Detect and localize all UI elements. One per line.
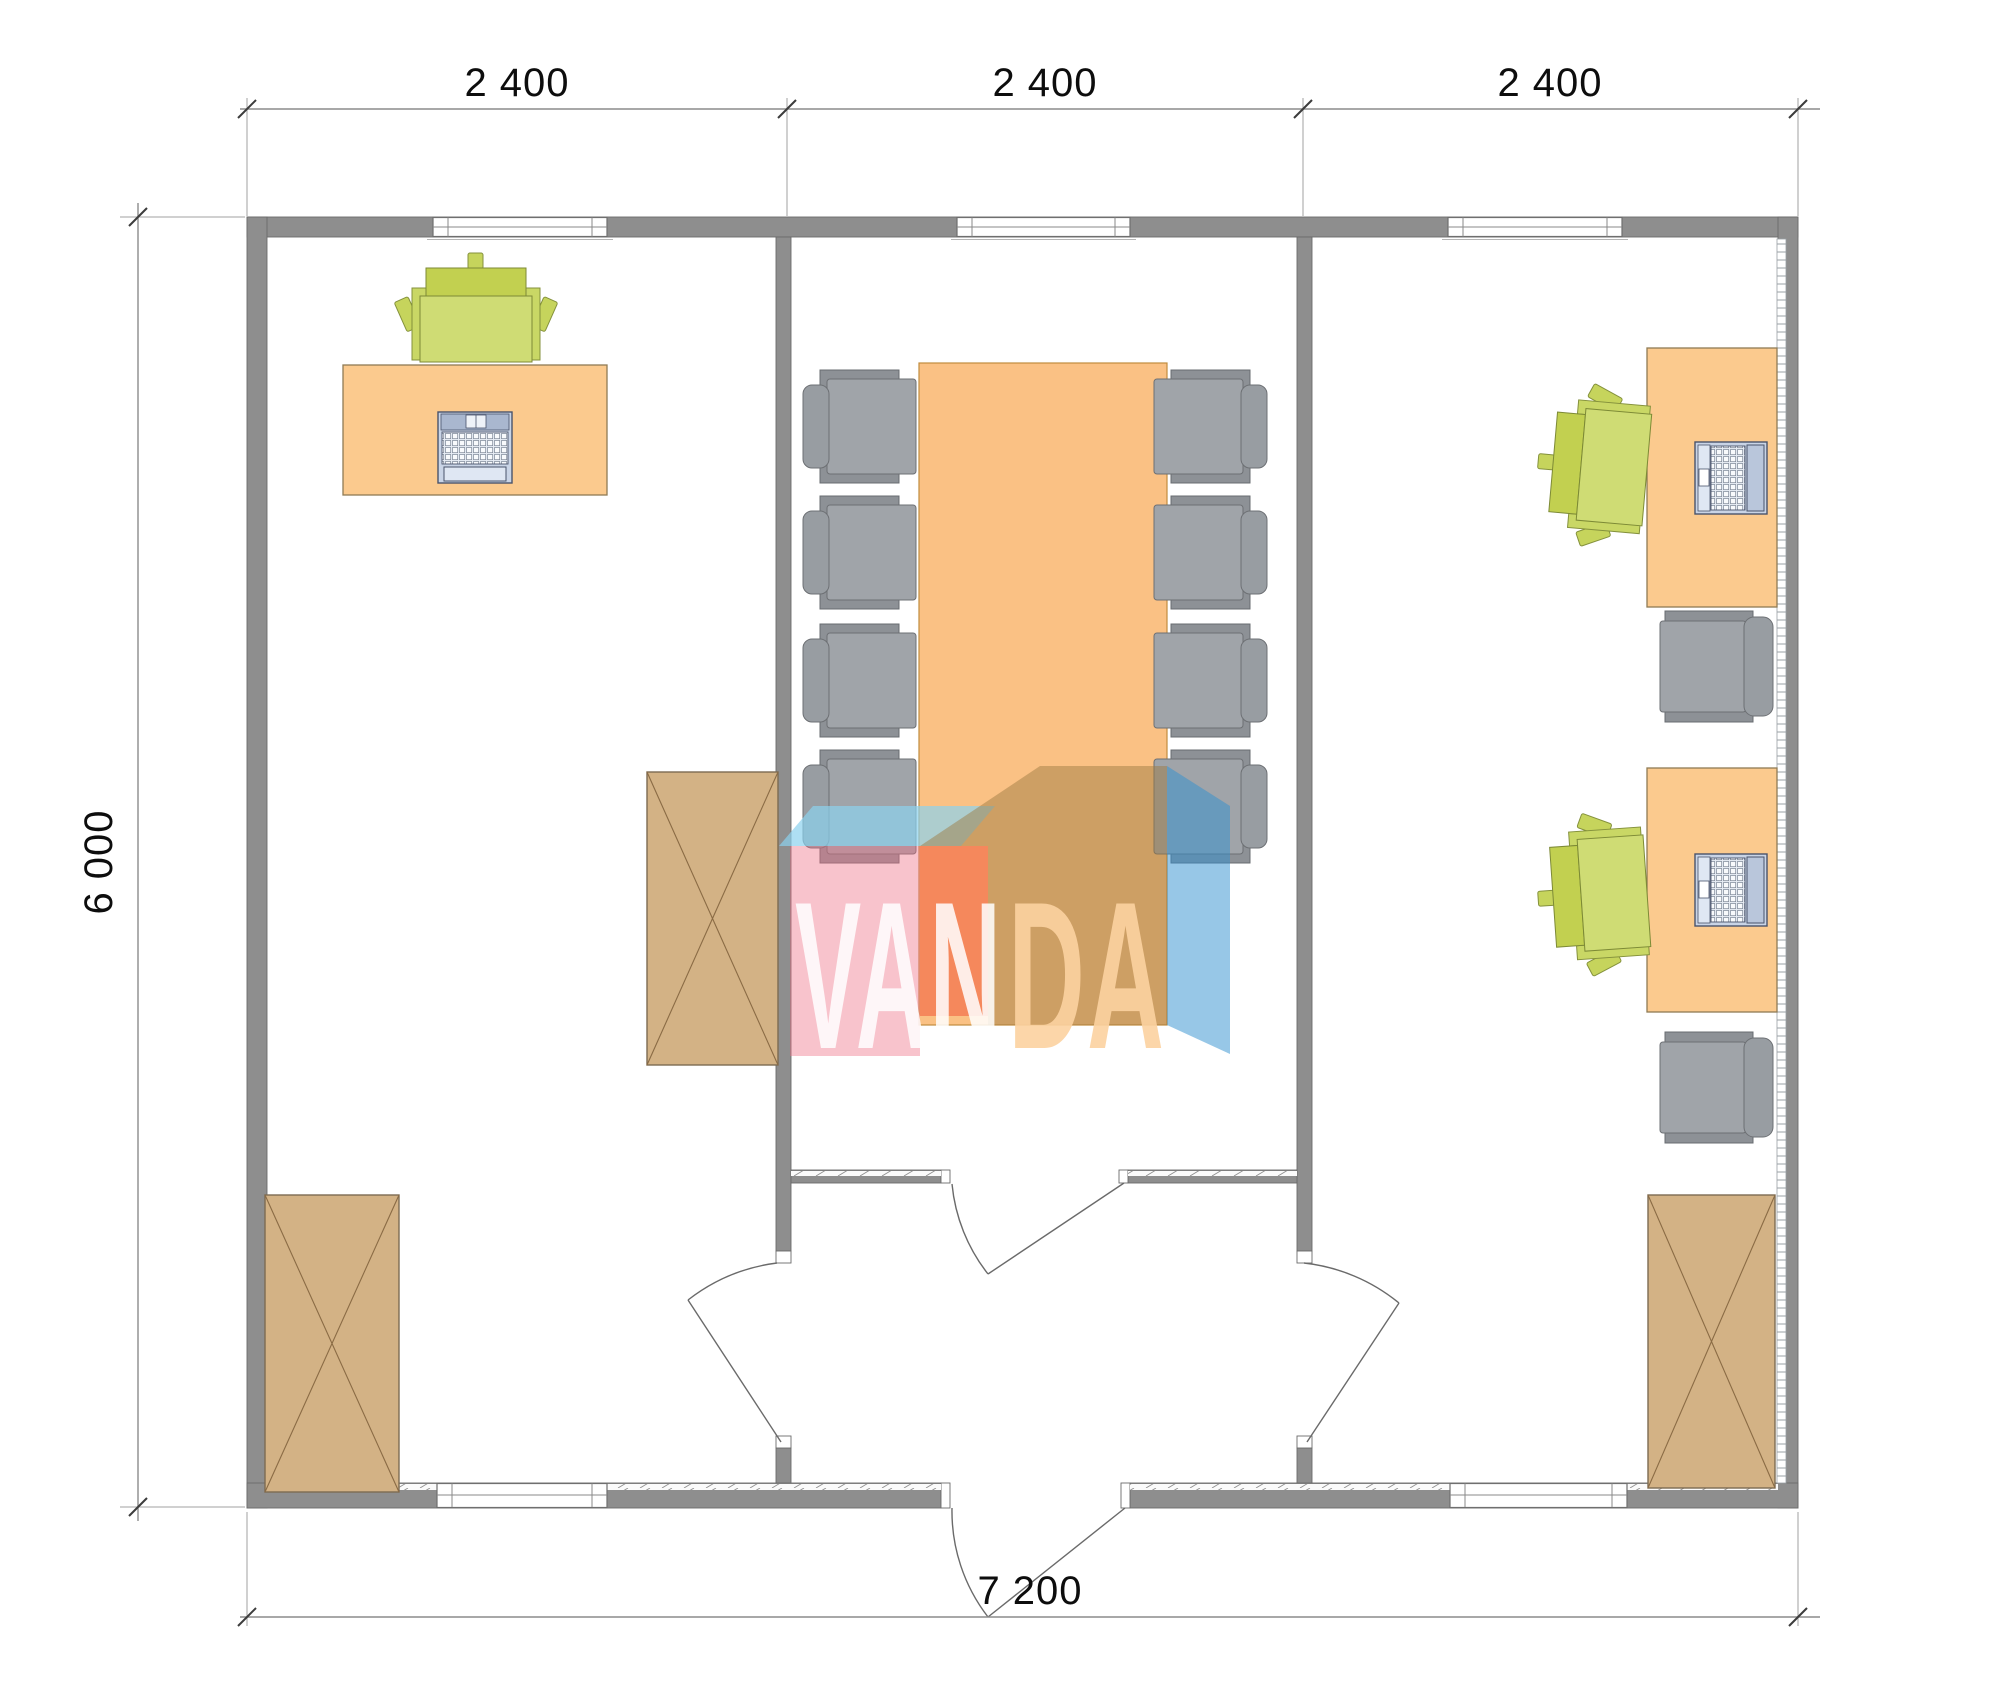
jamb-meeting-door-left: [941, 1170, 950, 1183]
jamb-meeting-door-right: [1119, 1170, 1128, 1183]
window-top-left-room: [427, 218, 613, 240]
guest-chair: [1660, 611, 1773, 722]
partition-2-upper: [1297, 237, 1312, 1251]
partition-2-stub: [1297, 1448, 1312, 1483]
door-jamb-caps: [776, 1170, 1312, 1508]
watermark-right-face-blue: [1167, 766, 1230, 1054]
guest-chair: [1660, 1032, 1773, 1143]
wardrobe-cabinet-bottom-right: [1648, 1195, 1775, 1488]
jamb-partition1-top: [776, 1251, 791, 1263]
meeting-chair: [803, 624, 916, 737]
window-top-right-room: [1442, 218, 1628, 240]
wall-ladder-strip: [1777, 239, 1786, 1483]
dim-label-left: 6 000: [77, 809, 121, 914]
meeting-chair: [1154, 370, 1267, 483]
vanda-watermark: VAN DA: [779, 766, 1230, 1093]
office-chair-right-2: [1532, 809, 1652, 980]
dim-label-top-2: 2 400: [992, 61, 1097, 105]
jamb-partition2-top: [1297, 1251, 1312, 1263]
dim-label-bottom: 7 200: [977, 1569, 1082, 1613]
door-meeting-room: [952, 1183, 1124, 1274]
watermark-text-left: VAN: [795, 858, 1003, 1093]
hatch-strip: [1128, 1171, 1297, 1176]
laptop: [1695, 854, 1767, 926]
hatch-strip: [1130, 1484, 1450, 1490]
dim-label-top-1: 2 400: [464, 61, 569, 105]
office-chair-right-1: [1531, 379, 1654, 552]
jamb-entrance-right: [1121, 1483, 1130, 1508]
left-office-furniture: [265, 253, 778, 1492]
wall-hatch-strips: [267, 1171, 1778, 1490]
doors: [688, 1183, 1399, 1617]
desktop-computer: [438, 412, 512, 483]
wardrobe-cabinet-partition: [647, 772, 778, 1065]
door-left-room: [688, 1263, 781, 1442]
window-top-meeting-room: [951, 218, 1136, 240]
office-chair-left-office: [394, 253, 558, 362]
jamb-entrance-left: [941, 1483, 950, 1508]
wardrobe-cabinet-bottom-left: [265, 1195, 399, 1492]
door-right-room: [1304, 1263, 1399, 1442]
dim-label-top-3: 2 400: [1497, 61, 1602, 105]
right-office-furniture: [1531, 348, 1777, 1488]
hatch-strip: [791, 1171, 941, 1176]
meeting-chair: [803, 496, 916, 609]
floor-plan-drawing: VAN DA: [0, 0, 2000, 1704]
floor-plan-page: VAN DA: [0, 0, 2000, 1704]
laptop: [1695, 442, 1767, 514]
window-bottom-right-room: [1450, 1484, 1627, 1508]
meeting-chairs-left-column: [803, 370, 916, 863]
partition-1-stub: [776, 1448, 791, 1483]
meeting-chair: [803, 370, 916, 483]
meeting-chair: [1154, 496, 1267, 609]
partition-1-upper: [776, 237, 791, 1251]
wall-left: [247, 217, 267, 1508]
hatch-strip: [607, 1484, 941, 1490]
window-bottom-left-room: [437, 1484, 607, 1508]
meeting-chair: [1154, 624, 1267, 737]
watermark-text-right: DA: [1008, 858, 1166, 1093]
